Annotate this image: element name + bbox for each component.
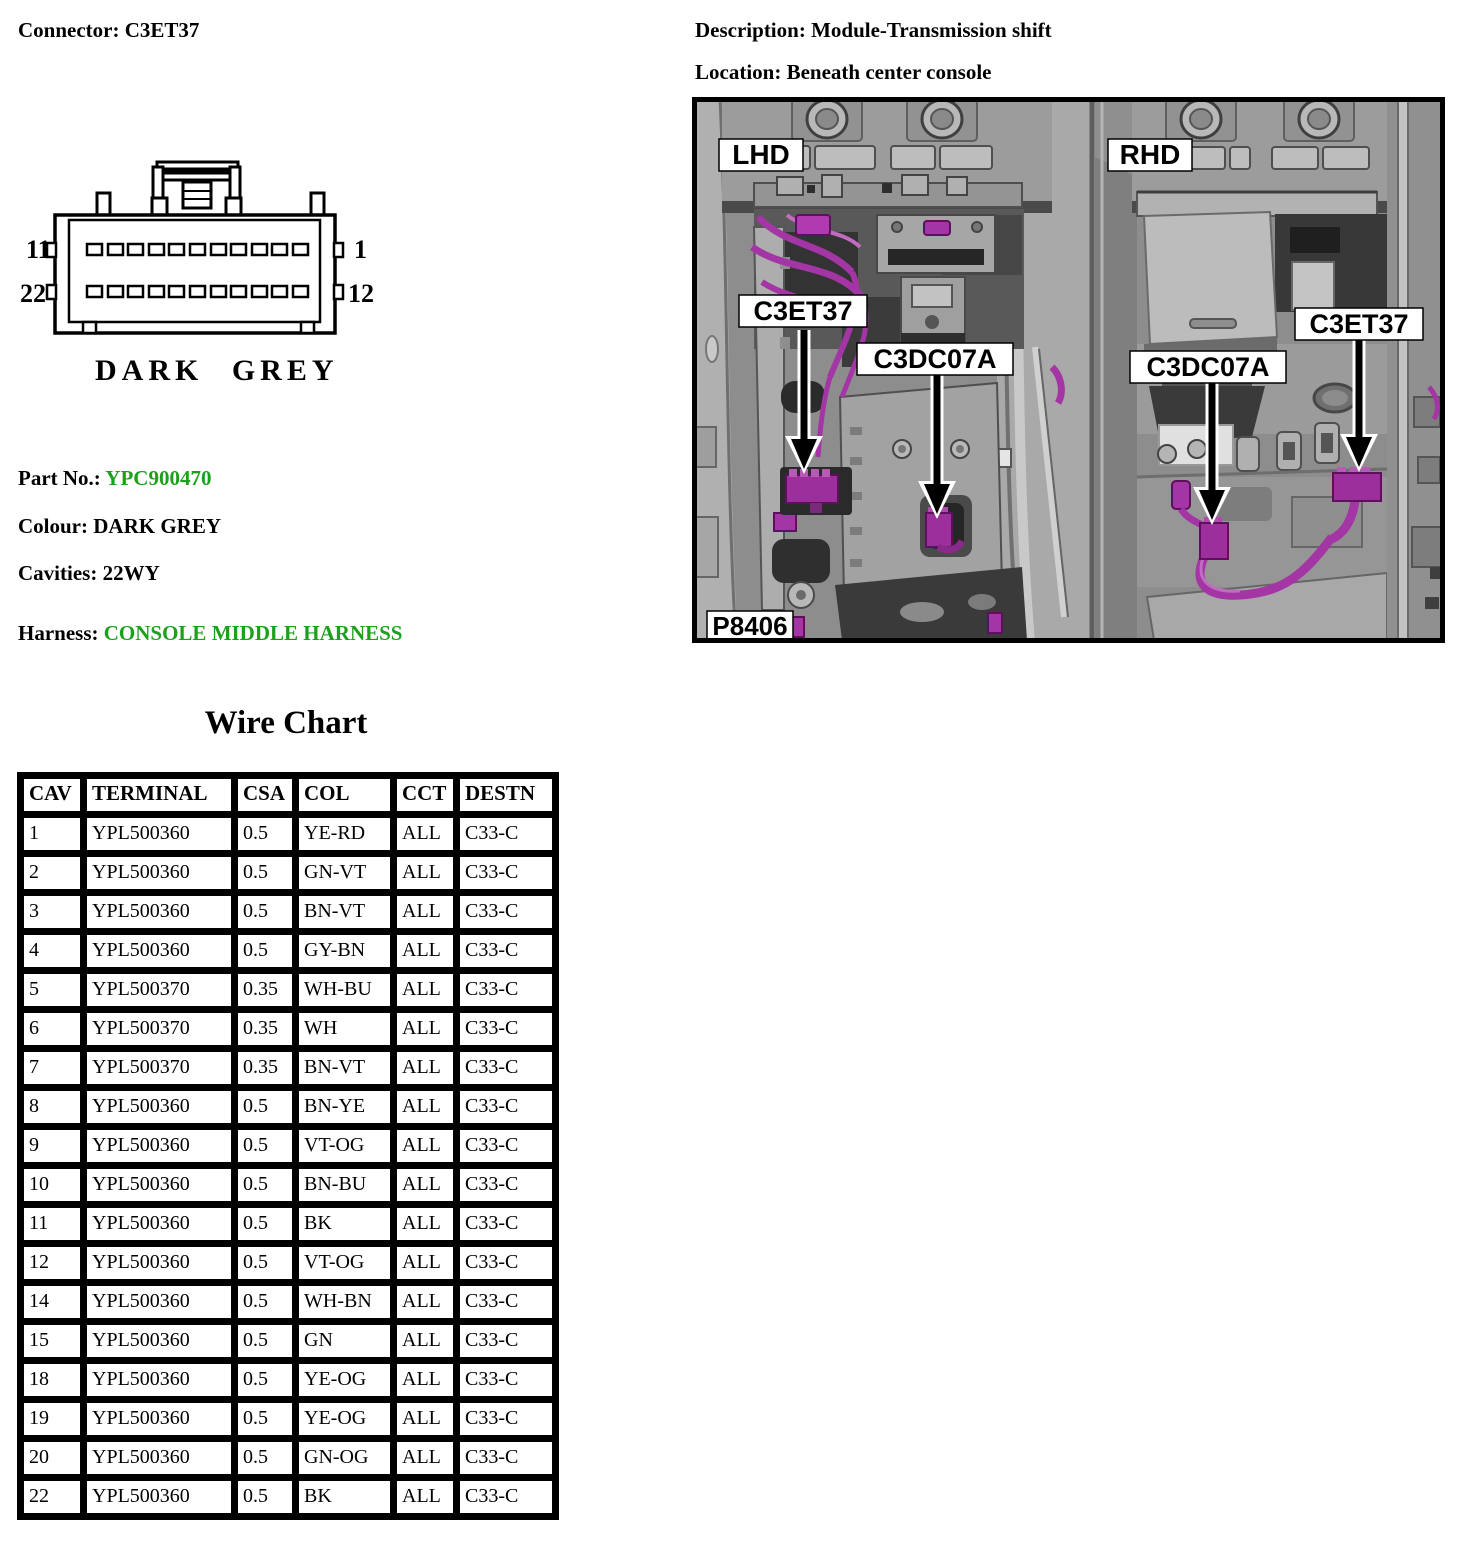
- table-cell: YPL500360: [85, 1362, 233, 1398]
- table-cell: C33-C: [458, 1128, 554, 1164]
- table-cell: 0.5: [236, 1323, 294, 1359]
- connector-c3dc07a-right: [1200, 517, 1228, 559]
- table-cell: 0.35: [236, 972, 294, 1008]
- colour-label: Colour:: [18, 514, 88, 538]
- connector-c3et37-right: [1333, 467, 1381, 501]
- svg-text:P8406: P8406: [712, 611, 787, 641]
- table-cell: ALL: [395, 1284, 455, 1320]
- table-cell: YPL500360: [85, 1479, 233, 1515]
- table-cell: YPL500360: [85, 1206, 233, 1242]
- table-cell: GN-VT: [297, 855, 392, 891]
- table-cell: 18: [22, 1362, 82, 1398]
- table-cell: GN-OG: [297, 1440, 392, 1476]
- table-cell: 12: [22, 1245, 82, 1281]
- table-cell: 7: [22, 1050, 82, 1086]
- location-label: Location:: [695, 60, 781, 84]
- location-photo: LHD RHD C3ET37 C3DC07A C3DC07A C3ET37 P8…: [692, 97, 1445, 643]
- pin-number-1: 1: [354, 235, 367, 264]
- table-cell: C33-C: [458, 1323, 554, 1359]
- table-cell: C33-C: [458, 1011, 554, 1047]
- connector-c3et37-left: [780, 467, 852, 515]
- table-cell: C33-C: [458, 933, 554, 969]
- table-row: 7YPL5003700.35BN-VTALLC33-C: [22, 1050, 554, 1086]
- table-cell: ALL: [395, 1089, 455, 1125]
- harness-line: Harness: CONSOLE MIDDLE HARNESS: [18, 621, 402, 646]
- description-heading: Description: Module-Transmission shift: [695, 18, 1052, 43]
- table-cell: C33-C: [458, 1050, 554, 1086]
- table-row: 18YPL5003600.5YE-OGALLC33-C: [22, 1362, 554, 1398]
- table-cell: 0.5: [236, 1206, 294, 1242]
- col-header-csa: CSA: [236, 777, 294, 813]
- connector-pin-row-top: [87, 244, 308, 255]
- table-cell: YE-OG: [297, 1401, 392, 1437]
- table-cell: BK: [297, 1479, 392, 1515]
- table-cell: C33-C: [458, 1284, 554, 1320]
- table-row: 6YPL5003700.35WHALLC33-C: [22, 1011, 554, 1047]
- table-row: 1YPL5003600.5YE-RDALLC33-C: [22, 816, 554, 852]
- description-label: Description:: [695, 18, 806, 42]
- photo-label-c3et37-right: C3ET37: [1295, 308, 1423, 340]
- cavities-value: 22WY: [103, 561, 160, 585]
- table-cell: C33-C: [458, 1401, 554, 1437]
- table-cell: C33-C: [458, 972, 554, 1008]
- table-cell: ALL: [395, 1128, 455, 1164]
- table-cell: YE-OG: [297, 1362, 392, 1398]
- table-cell: YPL500360: [85, 933, 233, 969]
- table-cell: 0.5: [236, 1440, 294, 1476]
- cavities-line: Cavities: 22WY: [18, 561, 160, 586]
- part-no-line: Part No.: YPC900470: [18, 466, 211, 491]
- table-cell: 0.5: [236, 1362, 294, 1398]
- connector-colour-caption: DARK GREY: [95, 354, 339, 387]
- table-cell: ALL: [395, 1206, 455, 1242]
- table-cell: YPL500370: [85, 1050, 233, 1086]
- table-cell: 6: [22, 1011, 82, 1047]
- table-row: 2YPL5003600.5GN-VTALLC33-C: [22, 855, 554, 891]
- table-cell: 2: [22, 855, 82, 891]
- table-cell: 0.5: [236, 816, 294, 852]
- table-cell: 15: [22, 1323, 82, 1359]
- photo-label-c3dc07a-right: C3DC07A: [1130, 351, 1286, 383]
- svg-text:LHD: LHD: [732, 139, 790, 170]
- table-cell: WH: [297, 1011, 392, 1047]
- connector-pin-row-bottom: [87, 286, 308, 297]
- table-row: 10YPL5003600.5BN-BUALLC33-C: [22, 1167, 554, 1203]
- table-cell: 0.5: [236, 1401, 294, 1437]
- connector-face-diagram: 11 22 1 12 DARK GREY: [20, 140, 420, 400]
- table-cell: BN-VT: [297, 894, 392, 930]
- table-cell: YPL500370: [85, 1011, 233, 1047]
- table-row: 8YPL5003600.5BN-YEALLC33-C: [22, 1089, 554, 1125]
- table-cell: C33-C: [458, 1245, 554, 1281]
- table-cell: ALL: [395, 1323, 455, 1359]
- location-heading: Location: Beneath center console: [695, 60, 991, 85]
- part-no-label: Part No.:: [18, 466, 101, 490]
- table-cell: ALL: [395, 1479, 455, 1515]
- table-cell: C33-C: [458, 1440, 554, 1476]
- table-cell: 0.35: [236, 1050, 294, 1086]
- table-row: 15YPL5003600.5GNALLC33-C: [22, 1323, 554, 1359]
- table-cell: C33-C: [458, 1479, 554, 1515]
- table-cell: ALL: [395, 894, 455, 930]
- photo-label-c3et37-left: C3ET37: [739, 295, 867, 327]
- table-row: 14YPL5003600.5WH-BNALLC33-C: [22, 1284, 554, 1320]
- table-cell: ALL: [395, 933, 455, 969]
- pin-number-12: 12: [348, 279, 374, 308]
- connector-sheet-page: { "header": { "connector_label": "Connec…: [0, 0, 1458, 1551]
- part-no-value: YPC900470: [105, 466, 211, 490]
- table-cell: ALL: [395, 972, 455, 1008]
- table-cell: YPL500360: [85, 816, 233, 852]
- right-console-wall: [1387, 97, 1445, 643]
- table-cell: YPL500360: [85, 1323, 233, 1359]
- table-cell: 0.5: [236, 855, 294, 891]
- photo-figure-number: P8406: [707, 611, 793, 641]
- table-cell: 8: [22, 1089, 82, 1125]
- pin-number-11: 11: [26, 235, 51, 264]
- table-cell: 20: [22, 1440, 82, 1476]
- table-cell: 0.5: [236, 1128, 294, 1164]
- table-cell: YPL500360: [85, 1128, 233, 1164]
- connector-value: C3ET37: [125, 18, 200, 42]
- harness-value: CONSOLE MIDDLE HARNESS: [104, 621, 403, 645]
- connector-heading: Connector: C3ET37: [18, 18, 199, 43]
- table-cell: YPL500360: [85, 1440, 233, 1476]
- table-cell: YPL500360: [85, 1089, 233, 1125]
- table-cell: C33-C: [458, 816, 554, 852]
- table-cell: 14: [22, 1284, 82, 1320]
- table-cell: WH-BU: [297, 972, 392, 1008]
- rhd-machinery: [1137, 192, 1387, 640]
- table-row: 20YPL5003600.5GN-OGALLC33-C: [22, 1440, 554, 1476]
- table-row: 19YPL5003600.5YE-OGALLC33-C: [22, 1401, 554, 1437]
- table-cell: 4: [22, 933, 82, 969]
- table-cell: 0.5: [236, 1245, 294, 1281]
- colour-line: Colour: DARK GREY: [18, 514, 221, 539]
- svg-text:RHD: RHD: [1120, 139, 1181, 170]
- table-cell: YPL500360: [85, 1284, 233, 1320]
- wire-chart-body: 1YPL5003600.5YE-RDALLC33-C2YPL5003600.5G…: [22, 816, 554, 1515]
- connector-body: [47, 193, 343, 333]
- table-row: 4YPL5003600.5GY-BNALLC33-C: [22, 933, 554, 969]
- wire-chart-table: CAV TERMINAL CSA COL CCT DESTN 1YPL50036…: [17, 772, 559, 1520]
- table-cell: YPL500360: [85, 855, 233, 891]
- table-row: 11YPL5003600.5BKALLC33-C: [22, 1206, 554, 1242]
- table-cell: 10: [22, 1167, 82, 1203]
- table-cell: BK: [297, 1206, 392, 1242]
- table-cell: C33-C: [458, 894, 554, 930]
- table-cell: 0.5: [236, 894, 294, 930]
- svg-text:C3ET37: C3ET37: [753, 296, 852, 326]
- wire-chart-title: Wire Chart: [17, 705, 555, 742]
- table-cell: VT-OG: [297, 1128, 392, 1164]
- table-row: 3YPL5003600.5BN-VTALLC33-C: [22, 894, 554, 930]
- table-row: 5YPL5003700.35WH-BUALLC33-C: [22, 972, 554, 1008]
- table-cell: YPL500370: [85, 972, 233, 1008]
- connector-label: Connector:: [18, 18, 119, 42]
- table-cell: C33-C: [458, 1206, 554, 1242]
- table-cell: ALL: [395, 816, 455, 852]
- location-value: Beneath center console: [787, 60, 992, 84]
- table-cell: YPL500360: [85, 894, 233, 930]
- table-cell: ALL: [395, 1167, 455, 1203]
- table-row: 12YPL5003600.5VT-OGALLC33-C: [22, 1245, 554, 1281]
- table-cell: 22: [22, 1479, 82, 1515]
- description-value: Module-Transmission shift: [811, 18, 1052, 42]
- table-cell: BN-VT: [297, 1050, 392, 1086]
- table-header-row: CAV TERMINAL CSA COL CCT DESTN: [22, 777, 554, 813]
- table-cell: BN-BU: [297, 1167, 392, 1203]
- harness-label: Harness:: [18, 621, 99, 645]
- table-cell: 9: [22, 1128, 82, 1164]
- table-cell: 0.5: [236, 1089, 294, 1125]
- table-cell: ALL: [395, 855, 455, 891]
- table-cell: 5: [22, 972, 82, 1008]
- table-row: 9YPL5003600.5VT-OGALLC33-C: [22, 1128, 554, 1164]
- col-header-cct: CCT: [395, 777, 455, 813]
- photo-label-lhd: LHD: [719, 139, 803, 171]
- connector-c3dc07a-left: [920, 495, 972, 557]
- table-cell: 3: [22, 894, 82, 930]
- svg-text:C3DC07A: C3DC07A: [873, 344, 996, 374]
- table-cell: 11: [22, 1206, 82, 1242]
- table-cell: ALL: [395, 1401, 455, 1437]
- svg-text:C3DC07A: C3DC07A: [1146, 352, 1269, 382]
- lhd-machinery: [754, 175, 1027, 640]
- table-cell: WH-BN: [297, 1284, 392, 1320]
- table-cell: ALL: [395, 1362, 455, 1398]
- table-cell: GN: [297, 1323, 392, 1359]
- table-cell: 0.5: [236, 1167, 294, 1203]
- svg-text:C3ET37: C3ET37: [1309, 309, 1408, 339]
- table-row: 22YPL5003600.5BKALLC33-C: [22, 1479, 554, 1515]
- col-header-destn: DESTN: [458, 777, 554, 813]
- table-cell: ALL: [395, 1440, 455, 1476]
- cavities-label: Cavities:: [18, 561, 97, 585]
- table-cell: GY-BN: [297, 933, 392, 969]
- table-cell: VT-OG: [297, 1245, 392, 1281]
- col-header-cav: CAV: [22, 777, 82, 813]
- col-header-col: COL: [297, 777, 392, 813]
- table-cell: ALL: [395, 1050, 455, 1086]
- photo-label-rhd: RHD: [1108, 139, 1192, 171]
- table-cell: BN-YE: [297, 1089, 392, 1125]
- table-cell: C33-C: [458, 1089, 554, 1125]
- table-cell: ALL: [395, 1245, 455, 1281]
- table-cell: C33-C: [458, 1362, 554, 1398]
- table-cell: 0.5: [236, 1284, 294, 1320]
- table-cell: 0.5: [236, 933, 294, 969]
- table-cell: 1: [22, 816, 82, 852]
- connector-latch: [152, 162, 241, 215]
- table-cell: 0.35: [236, 1011, 294, 1047]
- table-cell: ALL: [395, 1011, 455, 1047]
- table-cell: 0.5: [236, 1479, 294, 1515]
- photo-label-c3dc07a-left: C3DC07A: [857, 343, 1013, 375]
- table-cell: YPL500360: [85, 1401, 233, 1437]
- pin-number-22: 22: [20, 279, 46, 308]
- table-cell: C33-C: [458, 1167, 554, 1203]
- col-header-terminal: TERMINAL: [85, 777, 233, 813]
- table-cell: 19: [22, 1401, 82, 1437]
- colour-value: DARK GREY: [93, 514, 221, 538]
- table-cell: C33-C: [458, 855, 554, 891]
- table-cell: YE-RD: [297, 816, 392, 852]
- table-cell: YPL500360: [85, 1245, 233, 1281]
- table-cell: YPL500360: [85, 1167, 233, 1203]
